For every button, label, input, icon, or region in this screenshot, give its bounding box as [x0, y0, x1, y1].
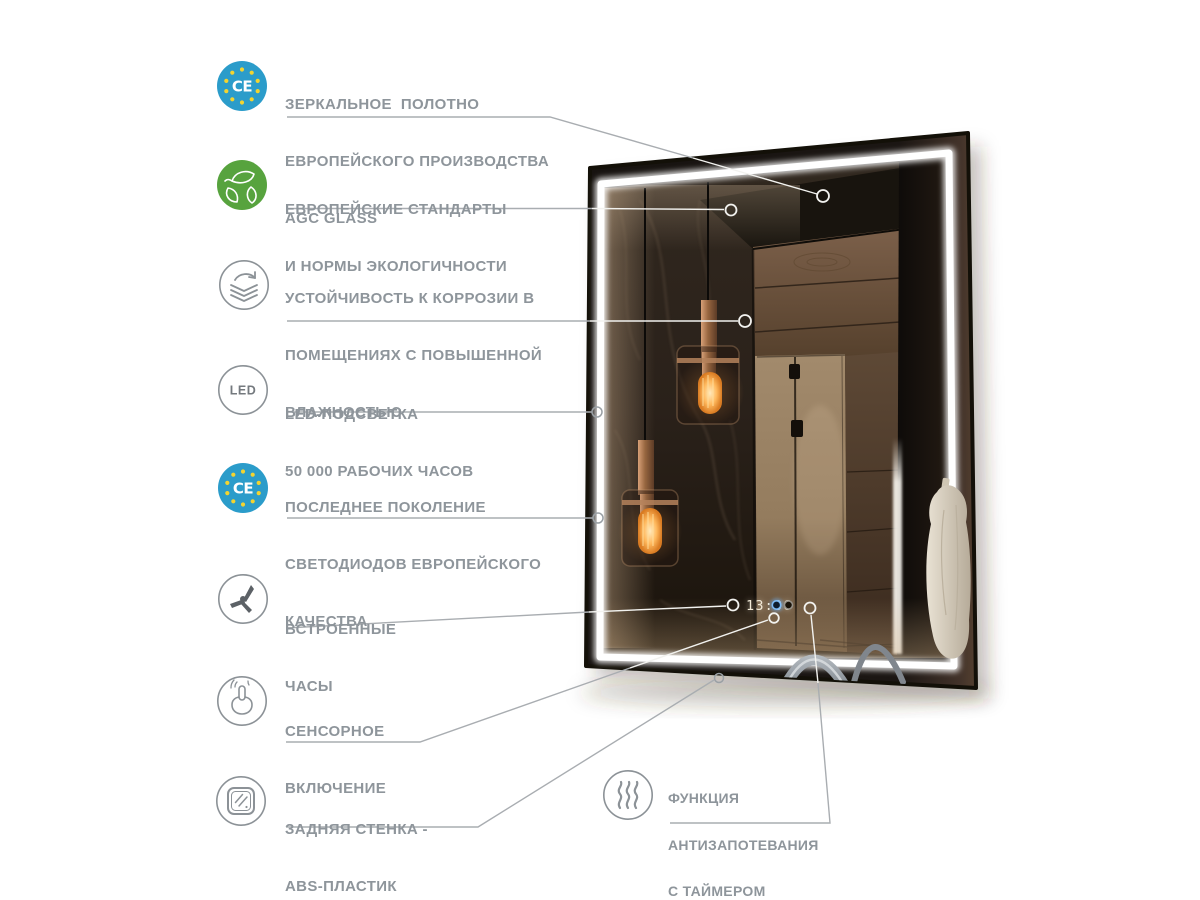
svg-text:LED: LED [230, 384, 257, 398]
svg-text:CE: CE [233, 480, 254, 498]
clock-display: 13:06 13:06 [746, 598, 793, 614]
mirror-reflection-scene: 13:06 13:06 [590, 150, 960, 670]
feature-line: ЕВРОПЕЙСКИЕ СТАНДАРТЫ [285, 200, 507, 219]
feature-line: ПОСЛЕДНЕЕ ПОКОЛЕНИЕ [285, 498, 541, 517]
feature-line: ПОМЕЩЕНИЯХ С ПОВЫШЕННОЙ [285, 346, 542, 365]
touch-mode-button [785, 601, 793, 609]
feature-line: АНТИЗАПОТЕВАНИЯ [668, 838, 830, 854]
feature-line: СЕНСОРНОЕ [285, 722, 386, 741]
ce-badge-icon: CE [217, 462, 269, 514]
back-panel-icon [215, 775, 267, 827]
feature-line: УСТОЙЧИВОСТЬ К КОРРОЗИИ В [285, 289, 542, 308]
feature-line: ЗЕРКАЛЬНОЕ ПОЛОТНО [285, 95, 549, 114]
feature-line: ВСТРОЕННЫЕ [285, 620, 396, 639]
feature-line: ФУНКЦИЯ [668, 791, 830, 807]
clock-icon [217, 573, 269, 625]
feature-line: С ТАЙМЕРОМ [668, 884, 830, 900]
product-photo-mirror: 13:06 13:06 [0, 0, 1200, 900]
infographic-canvas: 13:06 13:06 [0, 0, 1200, 900]
steam-icon [602, 769, 654, 821]
coating-layers-icon [218, 259, 270, 311]
led-icon: LED [217, 364, 269, 416]
feature-line: LED-ПОДСВЕТКА [285, 405, 473, 424]
towel-reflection [926, 478, 970, 659]
eco-leaves-icon [216, 159, 268, 211]
feature-line: ABS-ПЛАСТИК [285, 877, 428, 896]
touch-icon [216, 675, 268, 727]
feature-line: ЗАДНЯЯ СТЕНКА - [285, 820, 428, 839]
svg-text:CE: CE [232, 78, 253, 96]
callout-line [592, 209, 724, 210]
ce-badge-icon: CE [216, 60, 268, 112]
touch-power-button [772, 601, 780, 609]
feature-line: СВЕТОДИОДОВ ЕВРОПЕЙСКОГО [285, 555, 541, 574]
